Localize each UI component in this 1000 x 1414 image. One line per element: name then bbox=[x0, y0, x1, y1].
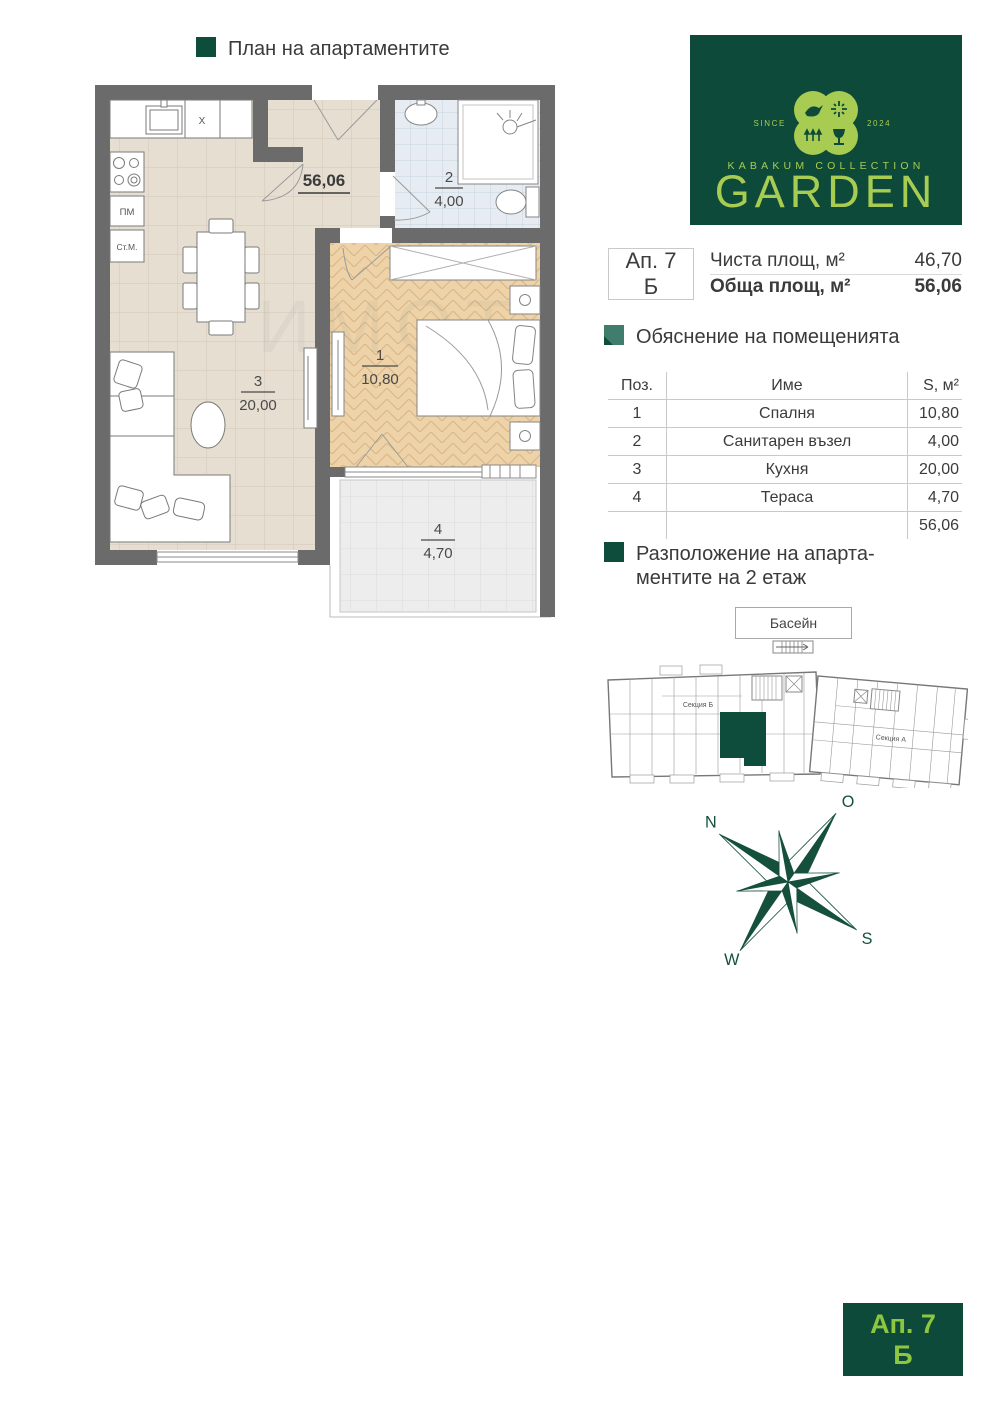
pool-label: Басейн bbox=[770, 615, 817, 631]
page: План на апартаментите bbox=[0, 0, 1000, 1414]
badge-apartment-number: Ап. 7 bbox=[870, 1309, 936, 1340]
cell-pos: 4 bbox=[608, 484, 667, 512]
cell-pos: 1 bbox=[608, 400, 667, 428]
rooms-table-header: Поз. Име S, м² bbox=[608, 372, 962, 400]
table-row: 4 Тераса 4,70 bbox=[608, 484, 962, 512]
badge-section: Б bbox=[893, 1340, 912, 1371]
cell-name: Тераса bbox=[667, 484, 908, 512]
location-title-line1: Разположение на апарта- bbox=[636, 542, 875, 566]
table-row: 1 Спалня 10,80 bbox=[608, 400, 962, 428]
total-area-value: 56,06 bbox=[914, 276, 962, 298]
cell-area: 10,80 bbox=[908, 400, 963, 428]
logo-since: SINCE bbox=[754, 119, 786, 128]
terrace-area: 4,70 bbox=[423, 545, 452, 562]
site-plan: Секция Б Секция А bbox=[602, 656, 968, 788]
compass-e-label: O bbox=[842, 793, 855, 811]
cell-area: 4,70 bbox=[908, 484, 963, 512]
col-header-name: Име bbox=[667, 372, 908, 400]
location-title-line2: ментите на 2 етаж bbox=[636, 566, 875, 590]
logo-emblem-icon bbox=[794, 91, 858, 155]
cell-name: Санитарен възел bbox=[667, 428, 908, 456]
heading-square-icon bbox=[604, 325, 624, 345]
garden-logo-art: SINCE 2024 KABAKUM COLLECTION GARDEN bbox=[690, 35, 962, 225]
apartment-id-box: Ап. 7 Б bbox=[608, 248, 694, 300]
total-area-label: Обща площ, м² bbox=[710, 276, 851, 298]
section-a-block: Секция А bbox=[809, 676, 968, 788]
garden-logo: SINCE 2024 KABAKUM COLLECTION GARDEN bbox=[690, 35, 962, 225]
table-row: 3 Кухня 20,00 bbox=[608, 456, 962, 484]
rooms-heading-title: Обяснение на помещенията bbox=[636, 325, 899, 349]
section-b-label: Секция Б bbox=[683, 702, 714, 709]
pool-box: Басейн bbox=[735, 607, 852, 639]
bath-area: 4,00 bbox=[434, 193, 463, 210]
trees-icon bbox=[805, 130, 821, 141]
heading-square-icon bbox=[196, 37, 216, 57]
net-area-value: 46,70 bbox=[914, 250, 962, 272]
total-area-label: 56,06 bbox=[303, 171, 346, 190]
total-area-row: Обща площ, м² 56,06 bbox=[710, 275, 962, 301]
plans-heading-title: План на апартаментите bbox=[228, 37, 450, 61]
apartment-info: Ап. 7 Б Чиста площ, м² 46,70 Обща площ, … bbox=[608, 248, 962, 300]
kitchen-num: 3 bbox=[254, 373, 262, 390]
compass-w-label: W bbox=[724, 951, 740, 969]
table-total-value: 56,06 bbox=[908, 512, 963, 540]
location-heading-title: Разположение на апарта- ментите на 2 ета… bbox=[636, 542, 875, 590]
bedroom-num: 1 bbox=[376, 347, 384, 364]
terrace-num: 4 bbox=[434, 521, 442, 538]
compass-s-label: S bbox=[862, 930, 873, 948]
cell-area: 20,00 bbox=[908, 456, 963, 484]
table-row: 2 Санитарен възел 4,00 bbox=[608, 428, 962, 456]
rooms-table: Поз. Име S, м² 1 Спалня 10,80 2 Санитаре… bbox=[608, 372, 962, 539]
heading-square-icon bbox=[604, 542, 624, 562]
bath-num: 2 bbox=[445, 169, 453, 186]
dishwasher-label: ПМ bbox=[120, 207, 135, 218]
col-header-pos: Поз. bbox=[608, 372, 667, 400]
location-heading: Разположение на апарта- ментите на 2 ета… bbox=[604, 542, 974, 590]
stairs-icon bbox=[772, 640, 814, 654]
highlighted-apartment bbox=[720, 712, 766, 766]
apartment-section: Б bbox=[644, 274, 658, 300]
section-b-block: Секция Б bbox=[608, 665, 820, 783]
net-area-label: Чиста площ, м² bbox=[710, 250, 845, 272]
apartment-badge: Ап. 7 Б bbox=[843, 1303, 963, 1376]
kitchen-area: 20,00 bbox=[239, 397, 277, 414]
compass-n-label: N bbox=[705, 814, 717, 832]
net-area-row: Чиста площ, м² 46,70 bbox=[710, 248, 962, 275]
compass-rose: N O S W bbox=[688, 782, 888, 982]
floor-plan-drawing: ИМОТ bbox=[90, 80, 560, 620]
apartment-number: Ап. 7 bbox=[625, 248, 676, 274]
bedroom-area: 10,80 bbox=[361, 371, 399, 388]
area-rows: Чиста площ, м² 46,70 Обща площ, м² 56,06 bbox=[694, 248, 962, 300]
cell-name: Кухня bbox=[667, 456, 908, 484]
logo-wordmark: GARDEN bbox=[715, 166, 938, 217]
cell-name: Спалня bbox=[667, 400, 908, 428]
rooms-heading: Обяснение на помещенията bbox=[604, 325, 899, 349]
logo-year: 2024 bbox=[867, 119, 891, 128]
washer-label: Ст.М. bbox=[117, 242, 138, 252]
floor-plan: ИМОТ bbox=[90, 80, 560, 620]
col-header-area: S, м² bbox=[908, 372, 963, 400]
table-total-row: 56,06 bbox=[608, 512, 962, 540]
hob-label: X bbox=[199, 116, 206, 127]
cell-area: 4,00 bbox=[908, 428, 963, 456]
plans-heading: План на апартаментите bbox=[196, 37, 450, 61]
cell-pos: 2 bbox=[608, 428, 667, 456]
cell-pos: 3 bbox=[608, 456, 667, 484]
